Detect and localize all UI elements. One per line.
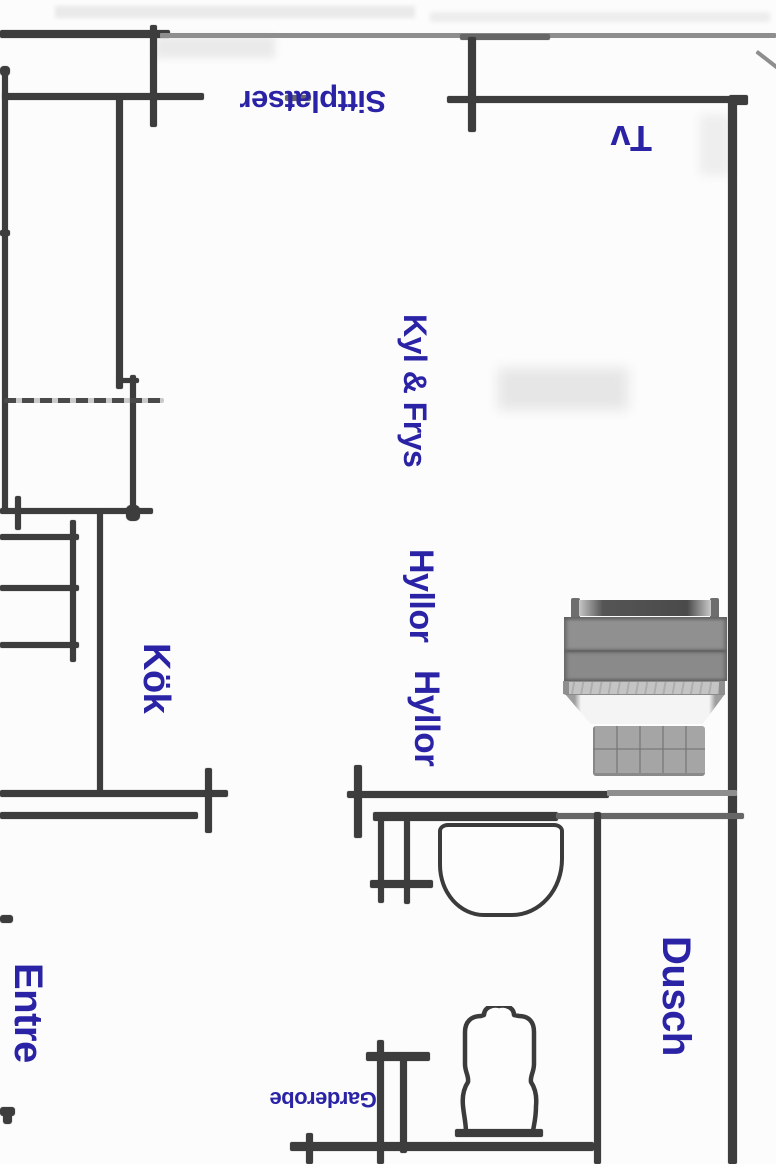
wall-bathroom-bottom (290, 1142, 594, 1151)
scan-smudge (700, 115, 730, 175)
faucet-line (404, 820, 410, 904)
wall-tick (150, 25, 157, 127)
scan-smudge (498, 368, 628, 410)
wall-bathroom-top (347, 791, 609, 798)
counter-blob (0, 66, 10, 76)
wall-horizontal (0, 790, 228, 797)
wall-tick-small (0, 230, 10, 236)
bed-pillow-cap (719, 681, 725, 694)
scan-diagonal-mark (755, 50, 776, 74)
shelf-line (0, 642, 79, 648)
room-label-dusch: Dusch (656, 936, 696, 1056)
wall-bathroom-top-light (607, 790, 737, 796)
wall-horizontal (0, 812, 198, 819)
wall-sink-counter (373, 812, 558, 821)
room-label-hyllor-2: Hyllor (409, 670, 444, 766)
faucet-crossbar (370, 880, 433, 888)
scan-smudge (430, 12, 770, 22)
door-jamb (205, 768, 212, 833)
room-label-hyllor-1: Hyllor (404, 549, 438, 642)
room-label-kok: Kök (137, 643, 175, 713)
wall-right (728, 98, 737, 1164)
scan-smudge (55, 6, 415, 18)
shelf-line (0, 534, 79, 540)
toilet (453, 1006, 545, 1142)
door-jamb-tick (306, 1133, 313, 1164)
counter-vertical-short (130, 375, 136, 520)
bed-headboard (579, 600, 711, 616)
bed-pillow-strip (564, 681, 725, 695)
door-jamb-tick (15, 496, 21, 530)
counter-line-sketchy (4, 398, 164, 403)
toilet-base-line (455, 1129, 543, 1137)
bed-mattress (564, 652, 727, 681)
counter-left-vertical (2, 70, 8, 510)
shelf-vertical (70, 520, 76, 662)
wall-bathroom-second-light (556, 813, 744, 819)
room-label-sittplatser: Sittplatser (240, 86, 386, 117)
scan-smudge (155, 36, 275, 58)
wall-tick (468, 37, 476, 132)
bed-sheet (565, 694, 725, 724)
room-label-entre: Entre (8, 963, 48, 1063)
room-label-garderobe: Garderobe (270, 1088, 377, 1110)
wall-sittplatser-left (2, 93, 204, 100)
wall-tick-left-edge (0, 915, 13, 923)
floor-plan: Sittplatser Tv Kyl & Frys Hyllor Hyllor … (0, 0, 776, 1164)
room-label-kyl-frys: Kyl & Frys (399, 314, 431, 467)
garderobe-wall-crossbar (366, 1052, 430, 1061)
wall-top-left (0, 30, 170, 38)
sink (438, 823, 564, 917)
faucet-line (378, 818, 384, 903)
shelf-line (0, 585, 79, 591)
bed-pillow-cap (563, 681, 569, 694)
room-label-tv: Tv (611, 120, 652, 156)
bed-duvet (593, 726, 705, 776)
wall-kitchen-vertical (97, 510, 103, 792)
bed-mattress (564, 617, 727, 652)
wall-tick-left-edge (3, 1113, 12, 1124)
wall-shower-divider (594, 812, 601, 1164)
wall-tv (447, 96, 747, 103)
garderobe-wall-vertical-short (400, 1053, 407, 1153)
bed (563, 595, 728, 775)
door-jamb (354, 765, 362, 838)
counter-inner-vertical (116, 97, 123, 389)
counter-horizontal (0, 508, 153, 514)
